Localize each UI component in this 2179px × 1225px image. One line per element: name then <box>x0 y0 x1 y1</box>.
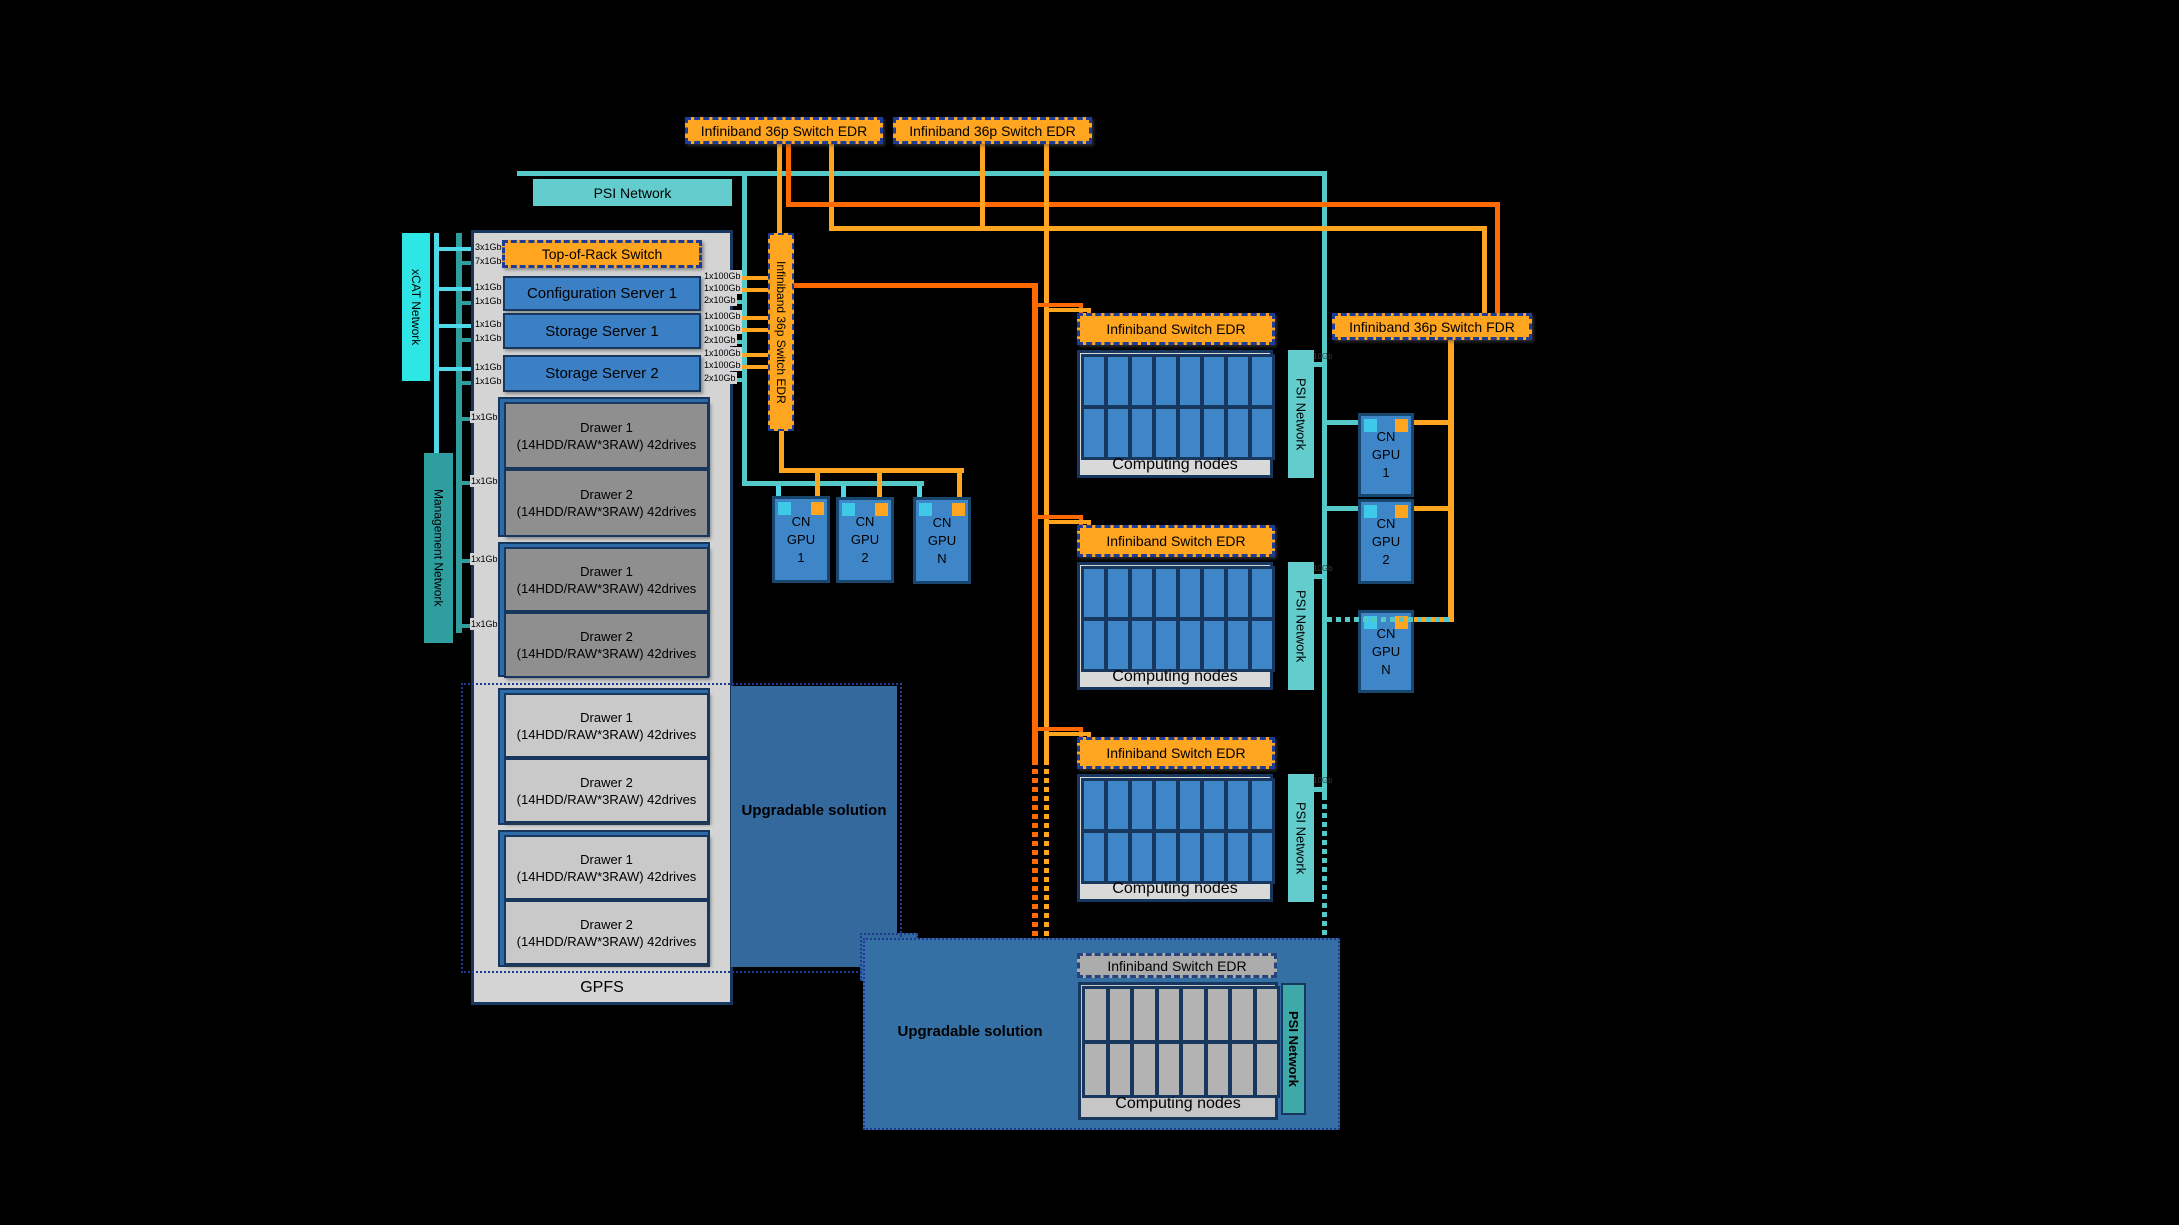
drawer-4-2: Drawer 2 (14HDD/RAW*3RAW) 42drives <box>504 900 709 965</box>
link-label-st1-r3: 2x10Gb <box>703 334 737 346</box>
psi-network-bar-label: PSI Network <box>594 185 672 201</box>
compute-node-cell <box>1228 357 1248 405</box>
drawer-3-1: Drawer 1 (14HDD/RAW*3RAW) 42drives <box>504 693 709 758</box>
compute-node-cell <box>1085 989 1106 1040</box>
compute-node-cell <box>1108 781 1128 829</box>
drawer-1-2: Drawer 2 (14HDD/RAW*3RAW) 42drives <box>504 469 709 537</box>
link-label-st2-r2: 1x100Gb <box>703 359 742 371</box>
compute-node-cell <box>1208 1044 1229 1095</box>
gpu-node-right-1: CN GPU 1 <box>1358 413 1414 497</box>
ib-port-icon <box>1395 505 1408 518</box>
ib-port-icon <box>952 503 965 516</box>
drawer-subtitle: (14HDD/RAW*3RAW) 42drives <box>517 436 697 453</box>
management-network-label: Management Network <box>432 489 446 606</box>
drawer-title: Drawer 2 <box>580 916 633 933</box>
top-infiniband-switch-2-label: Infiniband 36p Switch EDR <box>909 123 1076 139</box>
drawer-subtitle: (14HDD/RAW*3RAW) 42drives <box>517 645 697 662</box>
compute-block-1-grid <box>1081 354 1275 460</box>
compute-node-cell <box>1108 357 1128 405</box>
xcat-network-box: xCAT Network <box>402 233 430 381</box>
compute-node-cell <box>1156 781 1176 829</box>
compute-node-cell <box>1252 833 1272 881</box>
psi-port-icon <box>842 503 855 516</box>
uplink-label-1: 10Gb <box>1313 352 1333 361</box>
compute-node-cell <box>1204 569 1224 617</box>
compute-node-cell <box>1108 833 1128 881</box>
drawer-subtitle: (14HDD/RAW*3RAW) 42drives <box>517 503 697 520</box>
psi-label: PSI Network <box>1294 802 1309 874</box>
cable-horizontal-light <box>829 226 1487 231</box>
gpu-line: GPU <box>1372 533 1400 551</box>
gpu-node-right-n: CN GPU N <box>1358 610 1414 693</box>
cable-gpu-left-teal-feed <box>742 481 924 486</box>
compute-node-cell <box>1108 409 1128 457</box>
ib-port-icon <box>811 502 824 515</box>
link-label-cfg-l1: 1x1Gb <box>474 281 503 293</box>
cable-trunkA <box>1032 283 1038 760</box>
upgradable-1-text: Upgradable solution <box>741 802 886 819</box>
link-label-drawer-4: 1x1Gb <box>470 618 499 630</box>
switch-label: Infiniband Switch EDR <box>1107 958 1246 974</box>
compute-node-cell <box>1134 989 1155 1040</box>
compute-node-cell <box>1132 409 1152 457</box>
drawer-subtitle: (14HDD/RAW*3RAW) 42drives <box>517 791 697 808</box>
drawer-title: Drawer 2 <box>580 486 633 503</box>
storage-server-2: Storage Server 2 <box>503 355 701 392</box>
compute-block-2-caption: Computing nodes <box>1081 667 1269 687</box>
compute-node-cell <box>1110 989 1131 1040</box>
future-block-caption: Computing nodes <box>1082 1093 1274 1115</box>
compute-node-cell <box>1132 781 1152 829</box>
psi-label: PSI Network <box>1294 378 1309 450</box>
vertical-infiniband-switch-label: Infiniband 36p Switch EDR <box>774 261 788 404</box>
gpu-line: CN <box>1377 625 1396 643</box>
compute-block-2-psi: PSI Network <box>1288 562 1314 690</box>
link-label-st2-r1: 1x100Gb <box>703 347 742 359</box>
link-label-st2-l1: 1x1Gb <box>474 361 503 373</box>
cable-rgpu2-teal <box>1327 506 1358 511</box>
gpu-line: 2 <box>1382 551 1389 569</box>
gpu-line: GPU <box>1372 446 1400 464</box>
top-of-rack-switch-label: Top-of-Rack Switch <box>542 246 663 262</box>
gpfs-text: GPFS <box>580 979 624 997</box>
psi-port-icon <box>778 502 791 515</box>
gpu-line: GPU <box>787 531 815 549</box>
psi-label: PSI Network <box>1286 1011 1301 1087</box>
cable-fdr-bus <box>1448 340 1454 622</box>
compute-node-cell <box>1180 357 1200 405</box>
compute-node-cell <box>1204 409 1224 457</box>
top-infiniband-switch-1: Infiniband 36p Switch EDR <box>685 117 883 144</box>
link-label-st1-l1: 1x1Gb <box>474 318 503 330</box>
cluster-architecture-diagram: Infiniband 36p Switch EDR Infiniband 36p… <box>0 0 2179 1225</box>
vertical-infiniband-switch: Infiniband 36p Switch EDR <box>768 233 794 431</box>
caption-text: Computing nodes <box>1112 880 1237 898</box>
cable-b2-branchA <box>1038 515 1083 519</box>
drawer-subtitle: (14HDD/RAW*3RAW) 42drives <box>517 868 697 885</box>
gpu-line: N <box>1381 661 1390 679</box>
compute-node-cell <box>1159 989 1180 1040</box>
compute-node-cell <box>1110 1044 1131 1095</box>
link-label-st1-r2: 1x100Gb <box>703 322 742 334</box>
gpu-line: N <box>937 550 946 568</box>
configuration-server-1: Configuration Server 1 <box>503 276 701 311</box>
compute-node-cell <box>1159 1044 1180 1095</box>
compute-node-cell <box>1252 409 1272 457</box>
compute-node-cell <box>1132 621 1152 669</box>
link-label-cfg-r2: 1x100Gb <box>703 282 742 294</box>
cable-fdr-elbow-light <box>1482 226 1487 313</box>
cable-psi-right-trunk <box>1322 171 1327 795</box>
configuration-server-1-label: Configuration Server 1 <box>527 285 677 302</box>
compute-node-cell <box>1084 833 1104 881</box>
compute-node-cell <box>1156 357 1176 405</box>
compute-node-cell <box>1134 1044 1155 1095</box>
compute-node-cell <box>1228 569 1248 617</box>
cable-b3-branchA <box>1038 727 1083 731</box>
switch-label: Infiniband Switch EDR <box>1106 533 1245 549</box>
cable-sw1-elbow-light <box>829 144 834 230</box>
link-label-cfg-l2: 1x1Gb <box>474 295 503 307</box>
compute-node-cell <box>1232 1044 1253 1095</box>
gpu-line: GPU <box>1372 643 1400 661</box>
gpu-node-left-n: CN GPU N <box>913 497 971 584</box>
compute-node-cell <box>1183 989 1204 1040</box>
gpu-node-right-2: CN GPU 2 <box>1358 499 1414 584</box>
drawer-subtitle: (14HDD/RAW*3RAW) 42drives <box>517 580 697 597</box>
compute-node-cell <box>1084 357 1104 405</box>
gpu-line: GPU <box>851 531 879 549</box>
compute-node-cell <box>1108 569 1128 617</box>
gpu-line: CN <box>856 513 875 531</box>
gpu-node-left-1: CN GPU 1 <box>772 496 830 583</box>
drawer-title: Drawer 1 <box>580 709 633 726</box>
compute-node-cell <box>1228 409 1248 457</box>
ib-port-icon <box>875 503 888 516</box>
compute-node-cell <box>1085 1044 1106 1095</box>
compute-node-cell <box>1084 781 1104 829</box>
link-label-cfg-r1: 1x100Gb <box>703 270 742 282</box>
top-infiniband-switch-2: Infiniband 36p Switch EDR <box>893 117 1092 144</box>
compute-node-cell <box>1204 833 1224 881</box>
compute-block-1-caption: Computing nodes <box>1081 455 1269 475</box>
compute-node-cell <box>1156 569 1176 617</box>
storage-server-1-label: Storage Server 1 <box>545 323 658 340</box>
gpu-line: CN <box>792 513 811 531</box>
compute-node-cell <box>1180 833 1200 881</box>
compute-node-cell <box>1084 409 1104 457</box>
compute-node-cell <box>1084 569 1104 617</box>
compute-node-cell <box>1180 569 1200 617</box>
compute-node-cell <box>1257 1044 1278 1095</box>
future-block-switch: Infiniband Switch EDR <box>1077 953 1277 978</box>
compute-node-cell <box>1252 781 1272 829</box>
uplink-label-3: 10Gb <box>1313 776 1333 785</box>
switch-label: Infiniband Switch EDR <box>1106 321 1245 337</box>
compute-node-cell <box>1156 621 1176 669</box>
compute-node-cell <box>1228 621 1248 669</box>
fdr-switch-label: Infiniband 36p Switch FDR <box>1349 319 1515 335</box>
compute-block-2-grid <box>1081 566 1275 672</box>
drawer-2-1: Drawer 1 (14HDD/RAW*3RAW) 42drives <box>504 547 709 612</box>
cable-rgpu1-orange <box>1408 420 1448 425</box>
compute-block-1-switch: Infiniband Switch EDR <box>1077 313 1275 345</box>
uplink-label-2: 10Gb <box>1313 564 1333 573</box>
psi-port-icon <box>919 503 932 516</box>
caption-text: Computing nodes <box>1115 1095 1240 1113</box>
gpu-line: CN <box>1377 428 1396 446</box>
cable-rgpu2-orange <box>1408 506 1448 511</box>
compute-node-cell <box>1252 357 1272 405</box>
drawer-1-1: Drawer 1 (14HDD/RAW*3RAW) 42drives <box>504 402 709 469</box>
link-label-st2-r3: 2x10Gb <box>703 372 737 384</box>
compute-block-2-switch: Infiniband Switch EDR <box>1077 525 1275 557</box>
compute-node-cell <box>1156 833 1176 881</box>
drawer-title: Drawer 2 <box>580 628 633 645</box>
psi-label: PSI Network <box>1294 590 1309 662</box>
link-label-drawer-1: 1x1Gb <box>470 411 499 423</box>
drawer-2-2: Drawer 2 (14HDD/RAW*3RAW) 42drives <box>504 612 709 678</box>
compute-node-cell <box>1228 781 1248 829</box>
compute-node-cell <box>1108 621 1128 669</box>
compute-node-cell <box>1257 989 1278 1040</box>
compute-node-cell <box>1132 357 1152 405</box>
switch-label: Infiniband Switch EDR <box>1106 745 1245 761</box>
gpu-line: 2 <box>861 549 868 567</box>
management-network-box: Management Network <box>424 453 453 643</box>
compute-node-cell <box>1180 409 1200 457</box>
psi-network-bar: PSI Network <box>533 179 732 206</box>
compute-block-3-switch: Infiniband Switch EDR <box>1077 737 1275 769</box>
gpu-line: GPU <box>928 532 956 550</box>
drawer-title: Drawer 1 <box>580 419 633 436</box>
compute-block-1-psi: PSI Network <box>1288 350 1314 478</box>
storage-server-1: Storage Server 1 <box>503 313 701 349</box>
gpu-line: CN <box>1377 515 1396 533</box>
cable-gpu-left-orange-feed <box>779 468 964 473</box>
compute-block-3-grid <box>1081 778 1275 884</box>
cable-mgmt-bus <box>456 233 462 633</box>
link-label-tor-1: 3x1Gb <box>474 241 503 253</box>
compute-block-3-psi: PSI Network <box>1288 774 1314 902</box>
compute-node-cell <box>1232 989 1253 1040</box>
drawer-4-1: Drawer 1 (14HDD/RAW*3RAW) 42drives <box>504 835 709 900</box>
compute-node-cell <box>1228 833 1248 881</box>
compute-node-cell <box>1204 621 1224 669</box>
drawer-title: Drawer 1 <box>580 563 633 580</box>
drawer-subtitle: (14HDD/RAW*3RAW) 42drives <box>517 726 697 743</box>
cable-vswitch-down <box>779 431 784 473</box>
cable-b1-branchB <box>1049 308 1091 312</box>
compute-node-cell <box>1180 621 1200 669</box>
compute-node-cell <box>1156 409 1176 457</box>
top-of-rack-switch: Top-of-Rack Switch <box>502 240 702 268</box>
caption-text: Computing nodes <box>1112 456 1237 474</box>
upgradable-2-label: Upgradable solution <box>880 1018 1060 1044</box>
compute-node-cell <box>1208 989 1229 1040</box>
cable-rgpun-teal-dashed <box>1327 617 1449 622</box>
upgradable-2-text: Upgradable solution <box>897 1023 1042 1040</box>
ib-port-icon <box>1395 419 1408 432</box>
drawer-3-2: Drawer 2 (14HDD/RAW*3RAW) 42drives <box>504 758 709 823</box>
gpu-line: CN <box>933 514 952 532</box>
drawer-title: Drawer 1 <box>580 851 633 868</box>
compute-node-cell <box>1252 621 1272 669</box>
future-block-psi: PSI Network <box>1281 983 1306 1115</box>
link-label-tor-2: 7x1Gb <box>474 255 503 267</box>
gpu-node-left-2: CN GPU 2 <box>836 497 894 583</box>
psi-port-icon <box>1364 505 1377 518</box>
compute-node-cell <box>1252 569 1272 617</box>
cable-fdr-elbow-dark <box>1495 202 1500 313</box>
cable-sw1-to-vswitch <box>777 144 782 233</box>
cable-sw2-stub <box>980 144 985 230</box>
compute-block-3-caption: Computing nodes <box>1081 879 1269 899</box>
xcat-network-label: xCAT Network <box>409 269 423 345</box>
upgradable-1-label: Upgradable solution <box>731 795 897 825</box>
compute-node-cell <box>1132 569 1152 617</box>
link-label-st2-l2: 1x1Gb <box>474 375 503 387</box>
link-label-drawer-2: 1x1Gb <box>470 475 499 487</box>
drawer-subtitle: (14HDD/RAW*3RAW) 42drives <box>517 933 697 950</box>
gpu-line: 1 <box>1382 464 1389 482</box>
storage-server-2-label: Storage Server 2 <box>545 365 658 382</box>
cable-b1-branchA <box>1038 303 1083 307</box>
compute-node-cell <box>1084 621 1104 669</box>
cable-xcat-bus <box>434 233 439 467</box>
compute-node-cell <box>1180 781 1200 829</box>
top-infiniband-switch-1-label: Infiniband 36p Switch EDR <box>701 123 868 139</box>
compute-node-cell <box>1204 357 1224 405</box>
gpu-line: 1 <box>797 549 804 567</box>
link-label-drawer-3: 1x1Gb <box>470 553 499 565</box>
future-block-grid <box>1082 986 1280 1098</box>
cable-b2-branchB <box>1049 520 1091 524</box>
cable-b3-branchB <box>1049 732 1091 736</box>
cable-vswitch-to-trunkA <box>793 283 1037 288</box>
gpfs-label: GPFS <box>471 975 733 1001</box>
link-label-cfg-r3: 2x10Gb <box>703 294 737 306</box>
cable-psi-top-horizontal <box>517 171 1327 176</box>
compute-node-cell <box>1183 1044 1204 1095</box>
link-label-st1-r1: 1x100Gb <box>703 310 742 322</box>
drawer-title: Drawer 2 <box>580 774 633 791</box>
cable-horizontal-dark <box>786 202 1500 207</box>
caption-text: Computing nodes <box>1112 668 1237 686</box>
cable-trunkB <box>1044 144 1049 760</box>
compute-node-cell <box>1132 833 1152 881</box>
psi-port-icon <box>1364 419 1377 432</box>
cable-sw1-elbow-dark <box>786 144 791 206</box>
compute-node-cell <box>1204 781 1224 829</box>
link-label-st1-l2: 1x1Gb <box>474 332 503 344</box>
fdr-switch: Infiniband 36p Switch FDR <box>1332 313 1532 340</box>
cable-rgpu1-teal <box>1327 420 1358 425</box>
